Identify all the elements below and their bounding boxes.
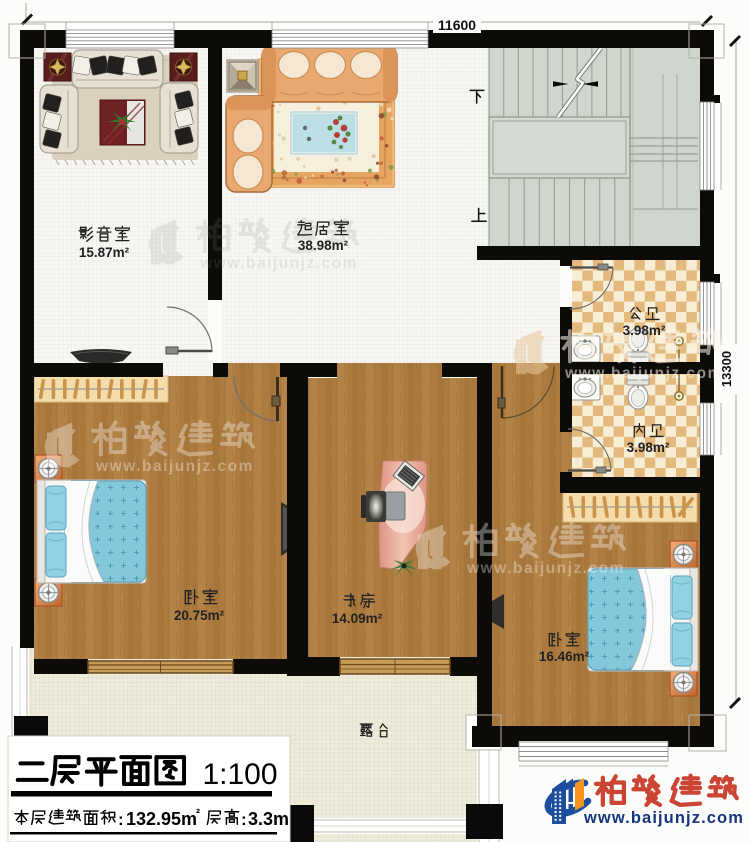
svg-text:www.baijunjz.com: www.baijunjz.com: [95, 458, 254, 475]
svg-text:20.75m²: 20.75m²: [174, 608, 225, 623]
svg-text:²: ²: [196, 806, 200, 820]
svg-text:www.baijunjz.com: www.baijunjz.com: [199, 255, 358, 272]
svg-text:3.98m²: 3.98m²: [627, 440, 670, 455]
svg-text:15.87m²: 15.87m²: [79, 245, 130, 260]
svg-text:www.baijunjz.com: www.baijunjz.com: [564, 365, 723, 382]
svg-text:1:100: 1:100: [202, 758, 277, 791]
svg-text::: :: [118, 810, 124, 829]
svg-text:www.baijunjz.com: www.baijunjz.com: [583, 809, 744, 827]
svg-text:3.3m: 3.3m: [248, 809, 289, 829]
svg-text:3.98m²: 3.98m²: [623, 323, 666, 338]
svg-text:14.09m²: 14.09m²: [332, 611, 383, 626]
svg-text:www.baijunjz.com: www.baijunjz.com: [466, 560, 625, 577]
svg-text::: :: [241, 810, 247, 829]
svg-text:16.46m²: 16.46m²: [539, 649, 590, 664]
svg-text:38.98m²: 38.98m²: [298, 238, 349, 253]
svg-text:132.95m: 132.95m: [126, 809, 197, 829]
svg-text:13300: 13300: [719, 351, 734, 387]
svg-text:11600: 11600: [438, 17, 476, 33]
